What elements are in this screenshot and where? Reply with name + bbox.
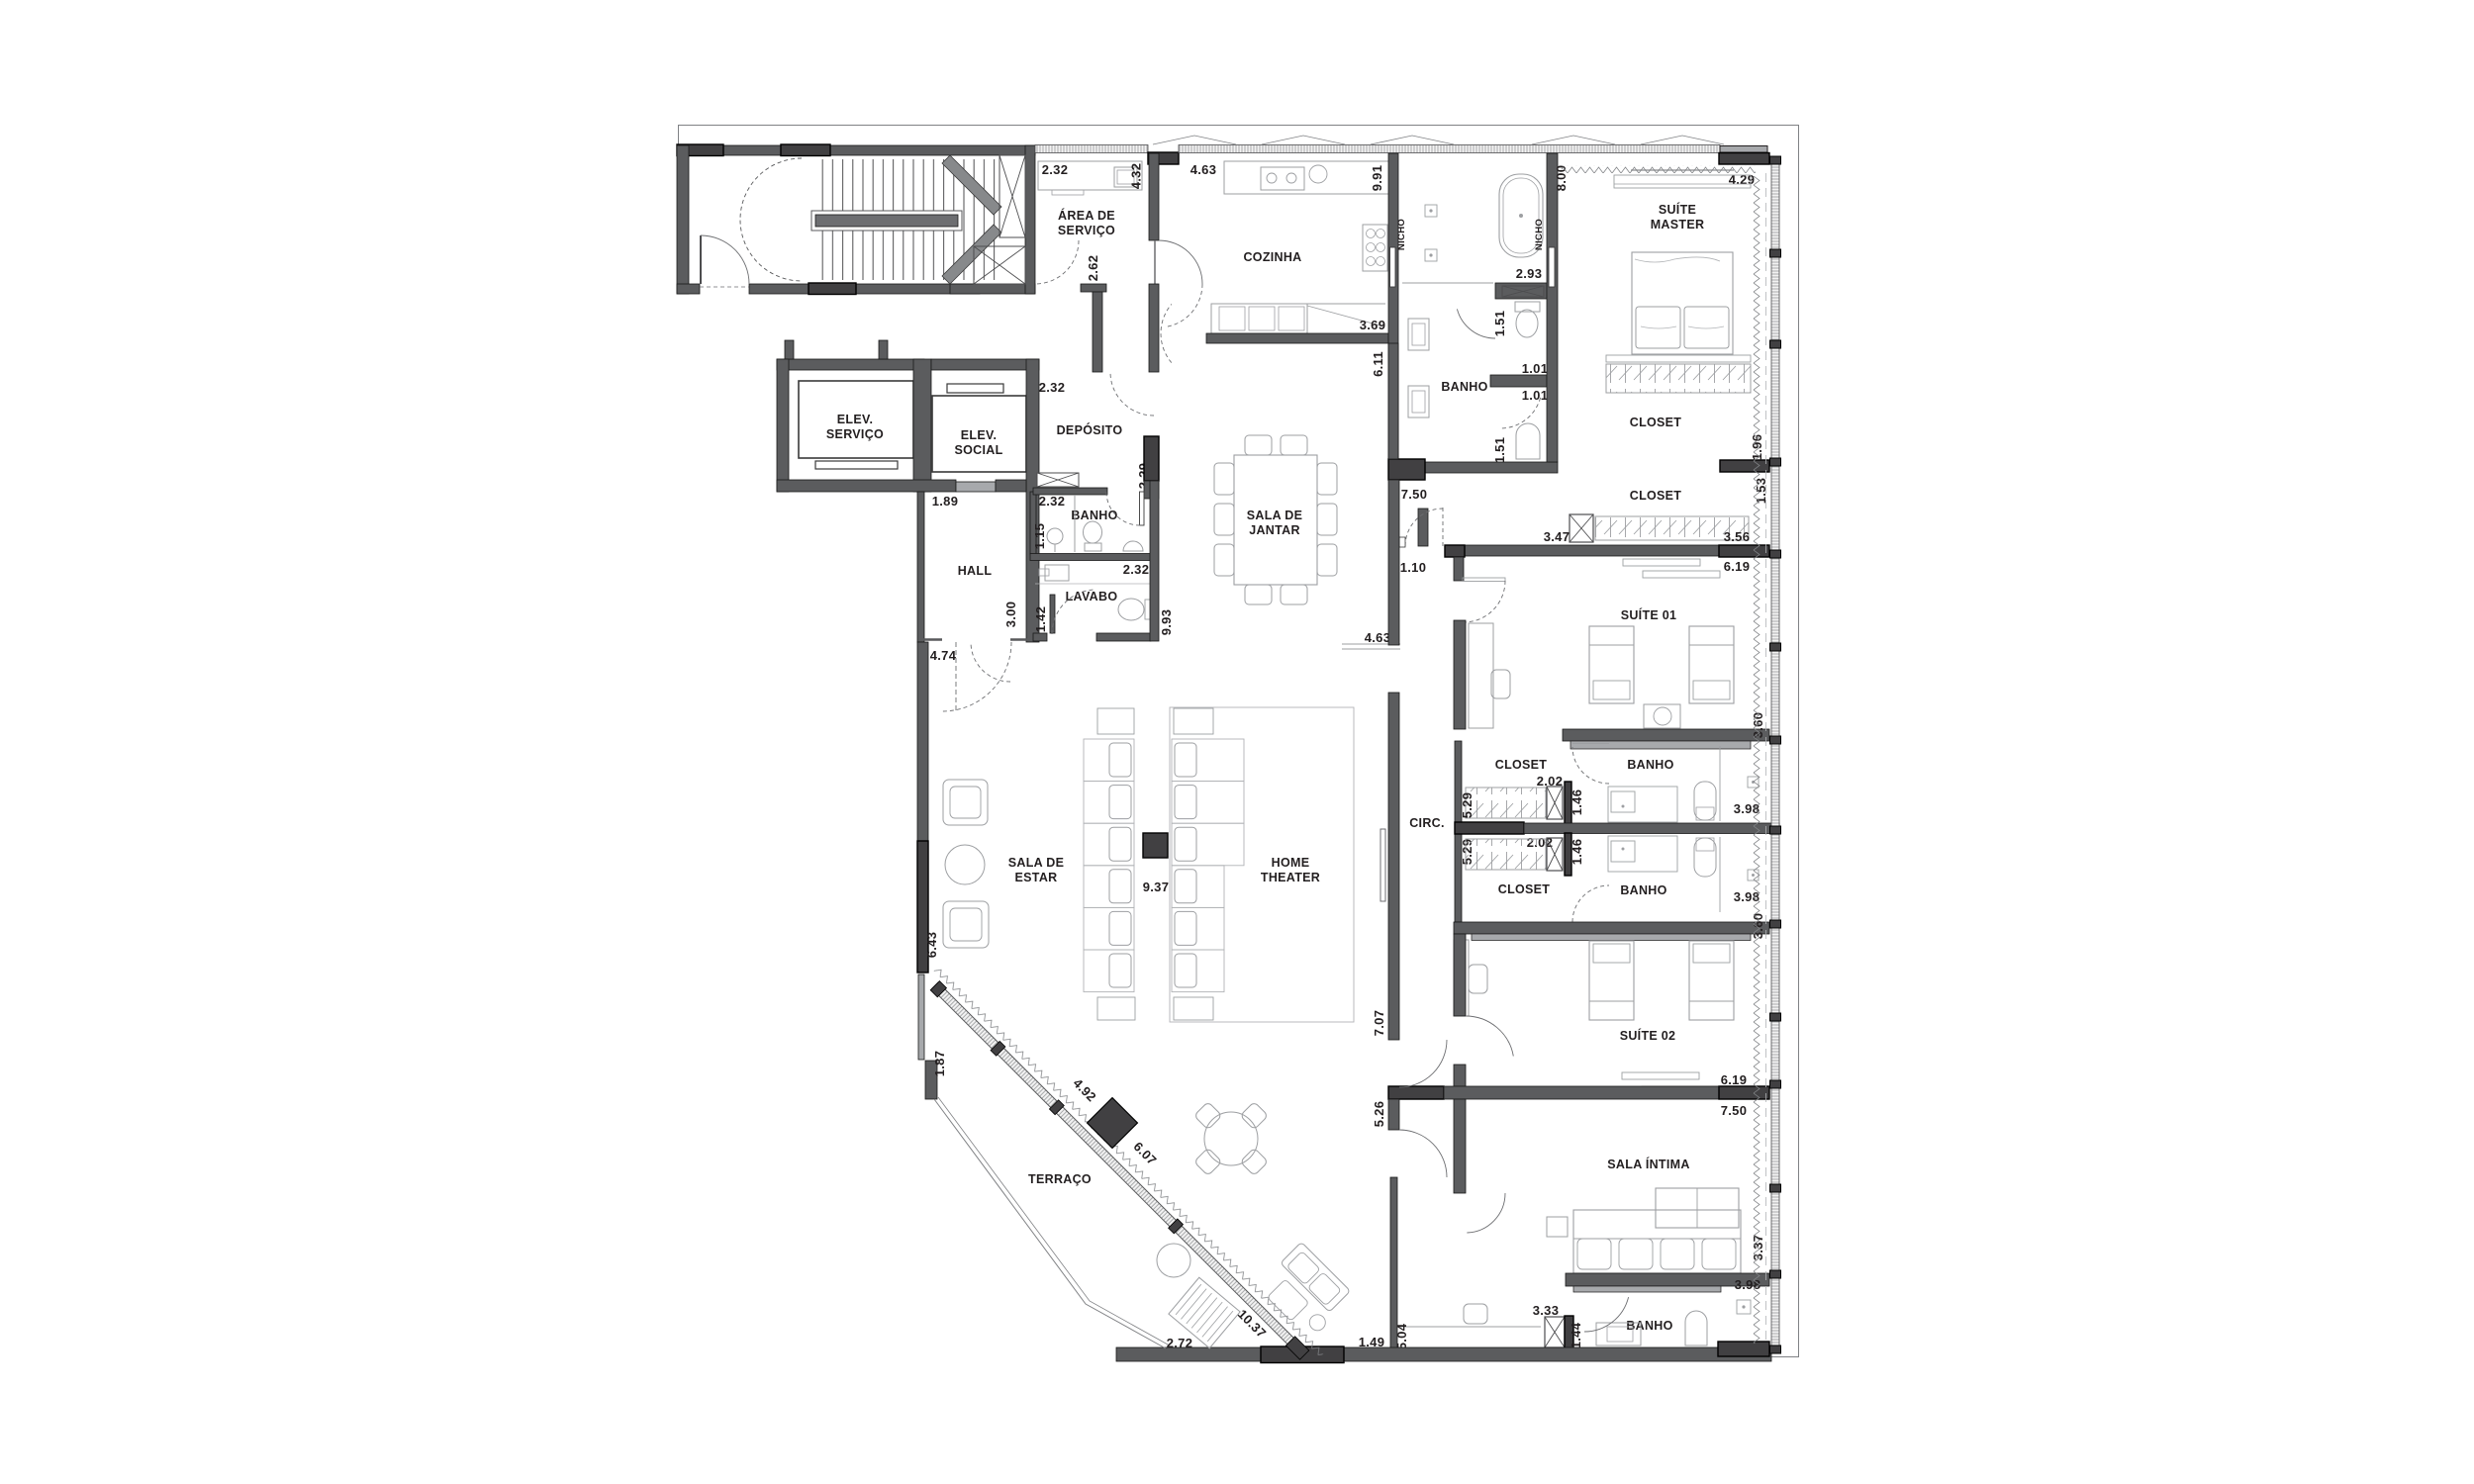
svg-text:1.51: 1.51 (1492, 311, 1507, 337)
svg-text:COZINHA: COZINHA (1243, 250, 1301, 264)
svg-text:5.26: 5.26 (1372, 1101, 1386, 1128)
svg-text:5.04: 5.04 (1394, 1323, 1409, 1349)
svg-text:SALA DE: SALA DE (1247, 509, 1303, 522)
svg-text:CLOSET: CLOSET (1495, 758, 1548, 772)
svg-text:DEPÓSITO: DEPÓSITO (1057, 422, 1123, 437)
svg-text:6.43: 6.43 (924, 932, 939, 959)
svg-text:1.10: 1.10 (1400, 560, 1427, 575)
svg-text:7.50: 7.50 (1401, 487, 1428, 502)
svg-text:7.07: 7.07 (1372, 1010, 1386, 1037)
svg-text:BANHO: BANHO (1441, 380, 1487, 394)
svg-text:7.50: 7.50 (1721, 1103, 1748, 1118)
svg-text:2.93: 2.93 (1516, 266, 1543, 281)
svg-text:BANHO: BANHO (1620, 883, 1666, 897)
svg-text:1.44: 1.44 (1569, 1322, 1583, 1348)
svg-text:1.87: 1.87 (932, 1051, 947, 1077)
svg-text:9.37: 9.37 (1143, 880, 1170, 894)
svg-text:2.32: 2.32 (1039, 494, 1066, 509)
svg-text:1.46: 1.46 (1570, 789, 1584, 816)
svg-text:4.74: 4.74 (930, 648, 957, 663)
svg-text:SALA ÍNTIMA: SALA ÍNTIMA (1607, 1157, 1689, 1171)
svg-text:1.15: 1.15 (1032, 523, 1047, 550)
svg-text:1.01: 1.01 (1522, 361, 1549, 376)
svg-text:6.19: 6.19 (1721, 1072, 1748, 1087)
svg-text:CLOSET: CLOSET (1630, 489, 1682, 503)
svg-text:TERRAÇO: TERRAÇO (1028, 1172, 1092, 1186)
svg-text:CLOSET: CLOSET (1498, 882, 1551, 896)
svg-text:9.93: 9.93 (1159, 609, 1174, 636)
svg-text:SUÍTE: SUÍTE (1659, 202, 1696, 217)
svg-text:1.01: 1.01 (1522, 388, 1549, 403)
svg-text:SERVIÇO: SERVIÇO (1058, 224, 1115, 237)
svg-text:BANHO: BANHO (1071, 509, 1117, 522)
svg-text:BANHO: BANHO (1626, 1319, 1672, 1333)
svg-text:NICHO: NICHO (1396, 219, 1407, 250)
svg-text:2.32: 2.32 (1123, 562, 1150, 577)
svg-text:4.63: 4.63 (1190, 162, 1217, 177)
svg-text:SUÍTE 02: SUÍTE 02 (1620, 1028, 1676, 1043)
svg-text:ELEV.: ELEV. (961, 428, 997, 442)
svg-text:9.91: 9.91 (1370, 165, 1384, 192)
svg-text:HOME: HOME (1272, 856, 1310, 870)
svg-text:3.33: 3.33 (1533, 1303, 1560, 1318)
svg-text:1.51: 1.51 (1492, 437, 1507, 464)
svg-text:6.19: 6.19 (1724, 559, 1751, 574)
svg-text:JANTAR: JANTAR (1249, 523, 1300, 537)
svg-text:ÁREA DE: ÁREA DE (1058, 208, 1115, 223)
svg-text:HALL: HALL (958, 564, 993, 578)
svg-text:ELEV.: ELEV. (837, 413, 873, 426)
svg-text:CIRC.: CIRC. (1409, 816, 1445, 830)
svg-text:BANHO: BANHO (1627, 758, 1673, 772)
svg-text:SUÍTE 01: SUÍTE 01 (1621, 607, 1677, 622)
svg-text:SOCIAL: SOCIAL (954, 443, 1002, 457)
svg-text:ESTAR: ESTAR (1015, 871, 1058, 884)
svg-text:1.42: 1.42 (1033, 606, 1048, 633)
svg-text:MASTER: MASTER (1651, 218, 1705, 232)
svg-text:2.62: 2.62 (1086, 255, 1100, 282)
svg-text:1.89: 1.89 (932, 494, 959, 509)
svg-text:1.46: 1.46 (1570, 839, 1584, 866)
svg-text:2.72: 2.72 (1167, 1336, 1193, 1350)
svg-text:3.56: 3.56 (1724, 529, 1751, 544)
svg-text:5.29: 5.29 (1460, 792, 1475, 819)
svg-text:CLOSET: CLOSET (1630, 416, 1682, 429)
svg-text:4.32: 4.32 (1129, 163, 1144, 190)
svg-text:3.00: 3.00 (1003, 602, 1018, 628)
svg-text:2.32: 2.32 (1042, 162, 1069, 177)
svg-text:NICHO: NICHO (1534, 219, 1545, 250)
svg-text:3.47: 3.47 (1544, 529, 1570, 544)
svg-text:2.32: 2.32 (1039, 380, 1066, 395)
svg-text:3.69: 3.69 (1360, 318, 1386, 332)
svg-text:THEATER: THEATER (1261, 871, 1320, 884)
svg-text:4.63: 4.63 (1365, 630, 1391, 645)
svg-text:6.11: 6.11 (1371, 351, 1385, 377)
svg-text:SALA DE: SALA DE (1008, 856, 1065, 870)
svg-text:SERVIÇO: SERVIÇO (826, 427, 884, 441)
